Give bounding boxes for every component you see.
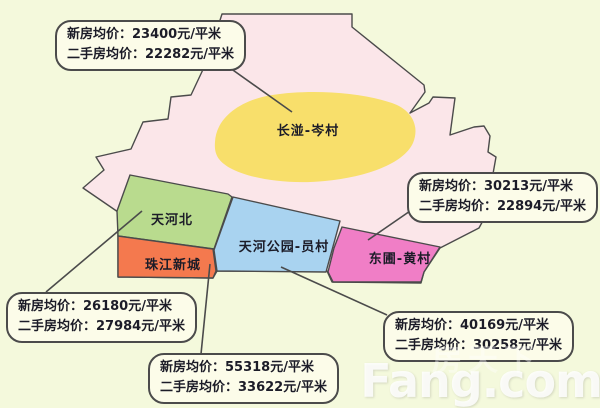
price-map-infographic: 长湴-岑村 天河北 珠江新城 天河公园-员村 东圃-黄村 新房均价：23400元… — [0, 0, 600, 400]
price-bubble-changban-cencun: 新房均价：23400元/平米 二手房均价：22282元/平米 — [55, 20, 246, 71]
resale-price-line: 二手房均价：27984元/平米 — [18, 317, 185, 337]
new-price-line: 新房均价：30213元/平米 — [419, 177, 586, 197]
price-bubble-tianhe-park-yuancun: 新房均价：40169元/平米 二手房均价：30258元/平米 — [383, 311, 574, 362]
new-price-line: 新房均价：26180元/平米 — [18, 297, 185, 317]
price-bubble-zhujiang-xincheng: 新房均价：55318元/平米 二手房均价：33622元/平米 — [148, 353, 339, 404]
region-label-zhujiang-xincheng: 珠江新城 — [145, 254, 201, 273]
price-bubble-dongpu-huangcun: 新房均价：30213元/平米 二手房均价：22894元/平米 — [407, 172, 598, 223]
resale-price-line: 二手房均价：22282元/平米 — [67, 45, 234, 65]
price-bubble-tianhebei: 新房均价：26180元/平米 二手房均价：27984元/平米 — [6, 292, 197, 343]
new-price-line: 新房均价：40169元/平米 — [395, 316, 562, 336]
resale-price-line: 二手房均价：33622元/平米 — [160, 378, 327, 398]
resale-price-line: 二手房均价：22894元/平米 — [419, 197, 586, 217]
region-label-dongpu-huangcun: 东圃-黄村 — [369, 248, 431, 267]
new-price-line: 新房均价：23400元/平米 — [67, 25, 234, 45]
new-price-line: 新房均价：55318元/平米 — [160, 358, 327, 378]
region-label-tianhebei: 天河北 — [151, 209, 193, 228]
resale-price-line: 二手房均价：30258元/平米 — [395, 336, 562, 356]
region-label-tianhe-park-yuancun: 天河公园-员村 — [239, 236, 329, 255]
region-label-changban-cencun: 长湴-岑村 — [277, 120, 339, 139]
